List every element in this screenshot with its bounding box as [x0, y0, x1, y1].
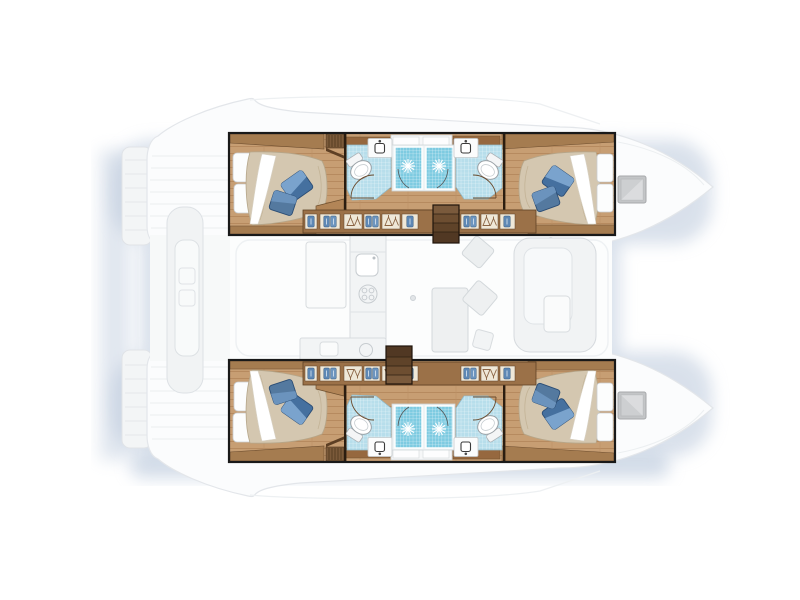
companionway-steps-starboard: [386, 346, 412, 384]
companionway-steps-port: [433, 205, 459, 243]
galley-island: [306, 242, 346, 308]
catamaran-floor-plan: [0, 0, 800, 600]
mast-foot: [411, 296, 416, 301]
floor-plan-canvas: [0, 0, 800, 600]
cockpit: [167, 207, 203, 393]
galley-ghost: [300, 232, 386, 362]
salon-table: [432, 288, 468, 352]
l-sofa: [514, 238, 596, 352]
port-hull-interior: [229, 133, 615, 235]
starboard-hull-interior: [229, 360, 615, 462]
